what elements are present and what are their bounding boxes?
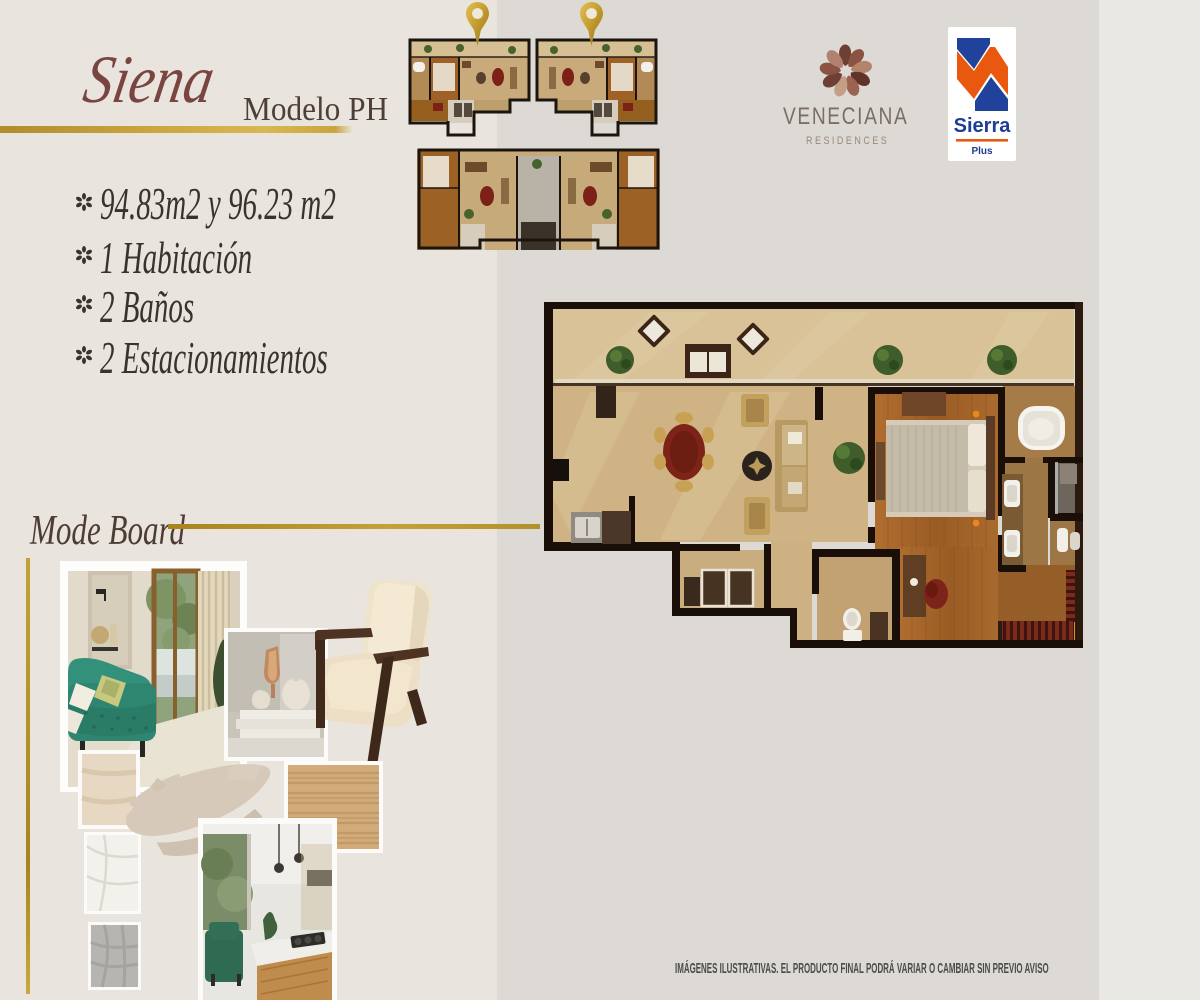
svg-text:Plus: Plus [971, 146, 993, 157]
svg-text:Sierra: Sierra [954, 115, 1012, 137]
